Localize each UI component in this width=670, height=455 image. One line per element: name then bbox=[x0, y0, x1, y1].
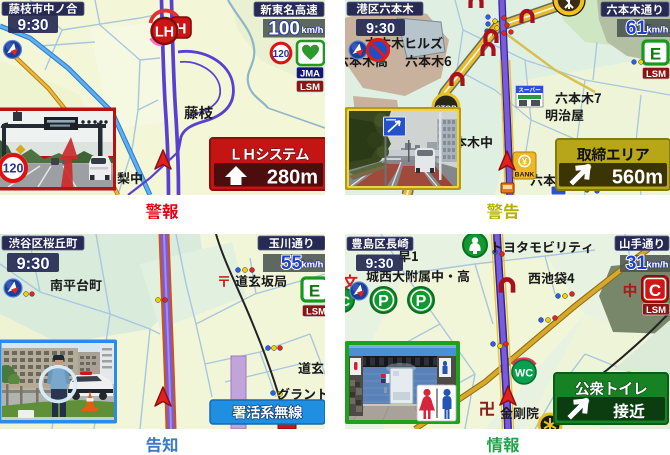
svg-text:E: E bbox=[309, 282, 320, 301]
svg-text:9:30: 9:30 bbox=[366, 21, 395, 37]
svg-text:120: 120 bbox=[273, 49, 290, 60]
svg-text:LSM: LSM bbox=[306, 307, 325, 318]
svg-text:¥: ¥ bbox=[522, 157, 528, 168]
svg-text:61: 61 bbox=[626, 18, 648, 39]
svg-text:280m: 280m bbox=[267, 167, 318, 189]
svg-text:km/h: km/h bbox=[646, 25, 668, 36]
svg-text:km/h: km/h bbox=[301, 260, 323, 271]
svg-text:WC: WC bbox=[515, 368, 533, 380]
svg-text:km/h: km/h bbox=[646, 260, 668, 271]
svg-text:C: C bbox=[345, 293, 350, 309]
svg-text:JMA: JMA bbox=[300, 69, 320, 80]
svg-text:31: 31 bbox=[626, 253, 648, 274]
svg-text:LSM: LSM bbox=[646, 305, 666, 316]
svg-text:120: 120 bbox=[3, 162, 24, 176]
svg-text:LH: LH bbox=[155, 25, 174, 41]
svg-text:P: P bbox=[416, 293, 427, 310]
svg-text:P: P bbox=[378, 293, 389, 310]
svg-text:9:30: 9:30 bbox=[16, 255, 49, 273]
svg-text:LSM: LSM bbox=[300, 82, 320, 93]
svg-text:560m: 560m bbox=[612, 167, 663, 189]
svg-text:BANK: BANK bbox=[515, 172, 535, 179]
svg-text:C: C bbox=[649, 281, 661, 300]
svg-text:9:30: 9:30 bbox=[365, 255, 393, 271]
svg-text:9:30: 9:30 bbox=[17, 17, 48, 34]
svg-text:km/h: km/h bbox=[301, 25, 323, 36]
svg-text:100: 100 bbox=[268, 19, 300, 40]
svg-text:LSM: LSM bbox=[646, 69, 666, 80]
svg-text:E: E bbox=[650, 45, 661, 64]
svg-text:55: 55 bbox=[281, 253, 303, 274]
